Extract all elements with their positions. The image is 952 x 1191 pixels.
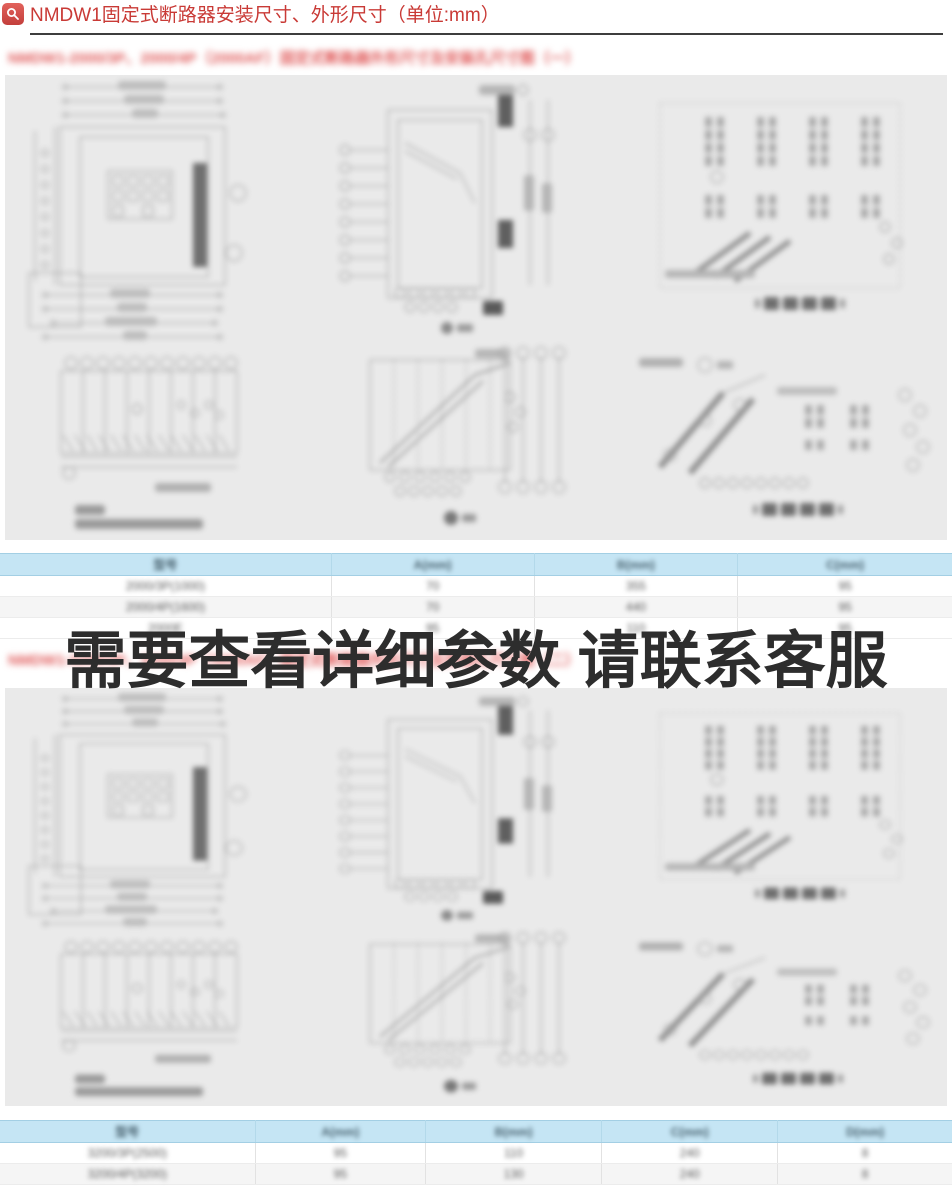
blurred-dimension-drawings: [5, 688, 947, 1106]
section1-drawings-panel: [5, 75, 947, 540]
mounting-hole-drawing: [639, 942, 929, 1084]
table-header-row: 型号 A(mm) B(mm) C(mm): [0, 554, 952, 576]
bottom-view-drawing: [61, 941, 237, 1096]
header-cell: A(mm): [255, 1121, 425, 1143]
side-view-drawing: [340, 697, 554, 921]
detail-view-drawing: [370, 933, 565, 1093]
front-view-drawing: [29, 81, 246, 340]
table-header-row: 型号 A(mm) B(mm) C(mm) D(mm): [0, 1121, 952, 1143]
product-spec-page: { "header": { "icon": "magnifier-icon", …: [0, 0, 952, 1191]
front-view-drawing: [29, 693, 246, 926]
header-cell: 型号: [0, 1121, 255, 1143]
header-cell: C(mm): [602, 1121, 778, 1143]
magnifier-icon: [2, 3, 24, 25]
busbar-pattern-drawing: [660, 103, 902, 310]
section1-subtitle: NMDW1-2000/3P、2000/4P（2000AF）固定式断路器外形尺寸及…: [8, 47, 698, 71]
header-cell: A(mm): [331, 554, 534, 576]
bottom-view-drawing: [61, 357, 237, 529]
table-row: 2000/3P(1000) 70 355 95: [0, 576, 952, 597]
mounting-hole-drawing: [639, 358, 929, 516]
section2-dimension-table: 型号 A(mm) B(mm) C(mm) D(mm) 3200/3P(2500)…: [0, 1120, 952, 1185]
header-divider: [30, 33, 943, 35]
detail-view-drawing: [370, 347, 565, 525]
page-title: NMDW1固定式断路器安装尺寸、外形尺寸（单位:mm）: [30, 4, 930, 28]
busbar-pattern-drawing: [660, 713, 902, 899]
blurred-dimension-drawings: [5, 75, 947, 540]
section2-drawings-panel: [5, 688, 947, 1106]
header-cell: D(mm): [778, 1121, 952, 1143]
header-cell: 型号: [0, 554, 331, 576]
header-cell: B(mm): [426, 1121, 602, 1143]
table-row: 3200/3P(2500) 95 110 240 8: [0, 1143, 952, 1164]
header-cell: B(mm): [534, 554, 738, 576]
contact-support-overlay: 需要查看详细参数 请联系客服: [0, 612, 952, 698]
header-cell: C(mm): [738, 554, 952, 576]
table-row: 3200/4P(3200) 95 130 240 8: [0, 1164, 952, 1185]
side-view-drawing: [340, 85, 554, 334]
